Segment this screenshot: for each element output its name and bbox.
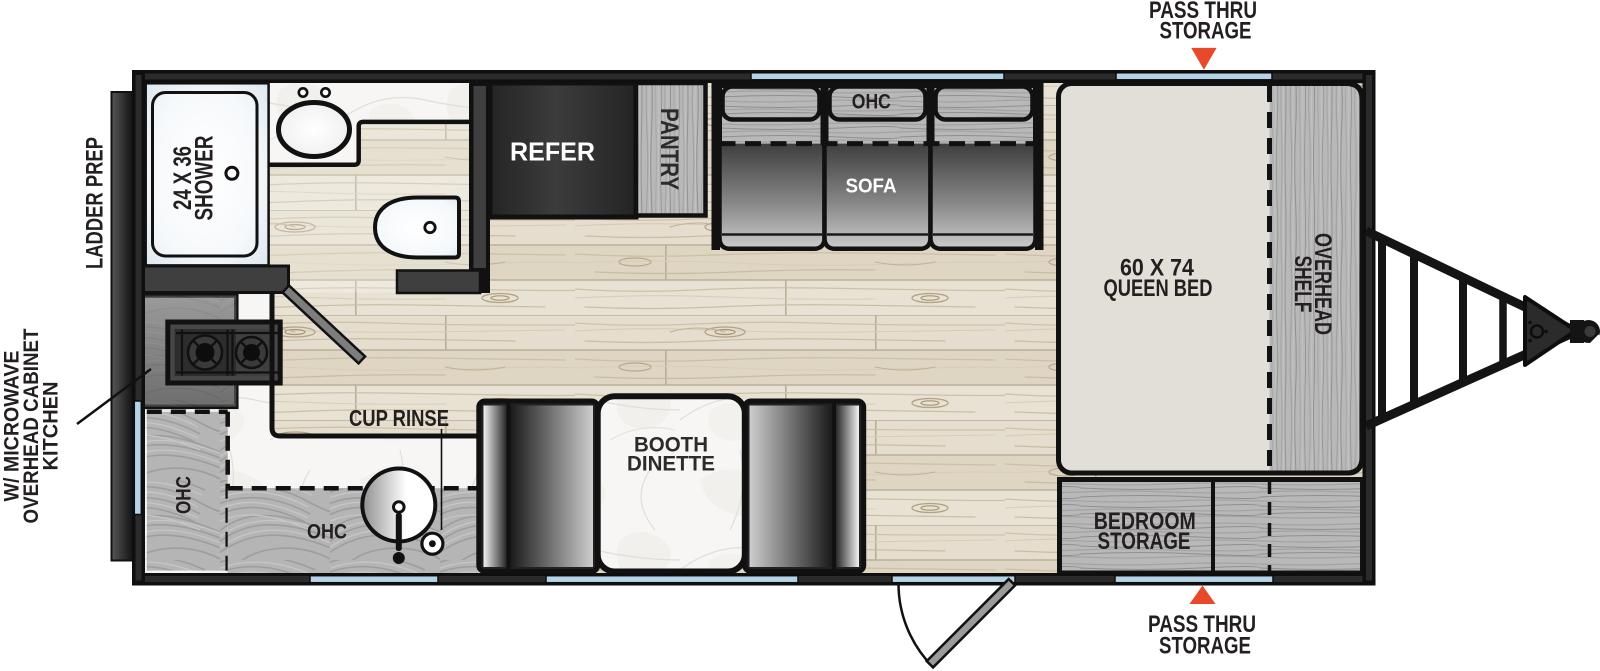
svg-text:DINETTE: DINETTE	[627, 452, 715, 476]
svg-text:SOFA: SOFA	[846, 175, 897, 198]
svg-text:LADDER PREP: LADDER PREP	[82, 137, 109, 269]
svg-text:24 X 36SHOWER: 24 X 36SHOWER	[169, 136, 219, 221]
svg-text:OHC: OHC	[852, 91, 891, 114]
svg-text:OHC: OHC	[307, 521, 347, 544]
svg-text:OHC: OHC	[173, 476, 196, 514]
svg-text:STORAGE: STORAGE	[1159, 633, 1251, 660]
svg-text:STORAGE: STORAGE	[1098, 528, 1191, 555]
svg-text:QUEEN BED: QUEEN BED	[1104, 275, 1213, 302]
svg-text:PANTRY: PANTRY	[655, 108, 683, 190]
svg-text:REFER: REFER	[510, 137, 595, 167]
svg-text:STORAGE: STORAGE	[1160, 18, 1252, 45]
svg-text:CUP RINSE: CUP RINSE	[349, 405, 449, 431]
